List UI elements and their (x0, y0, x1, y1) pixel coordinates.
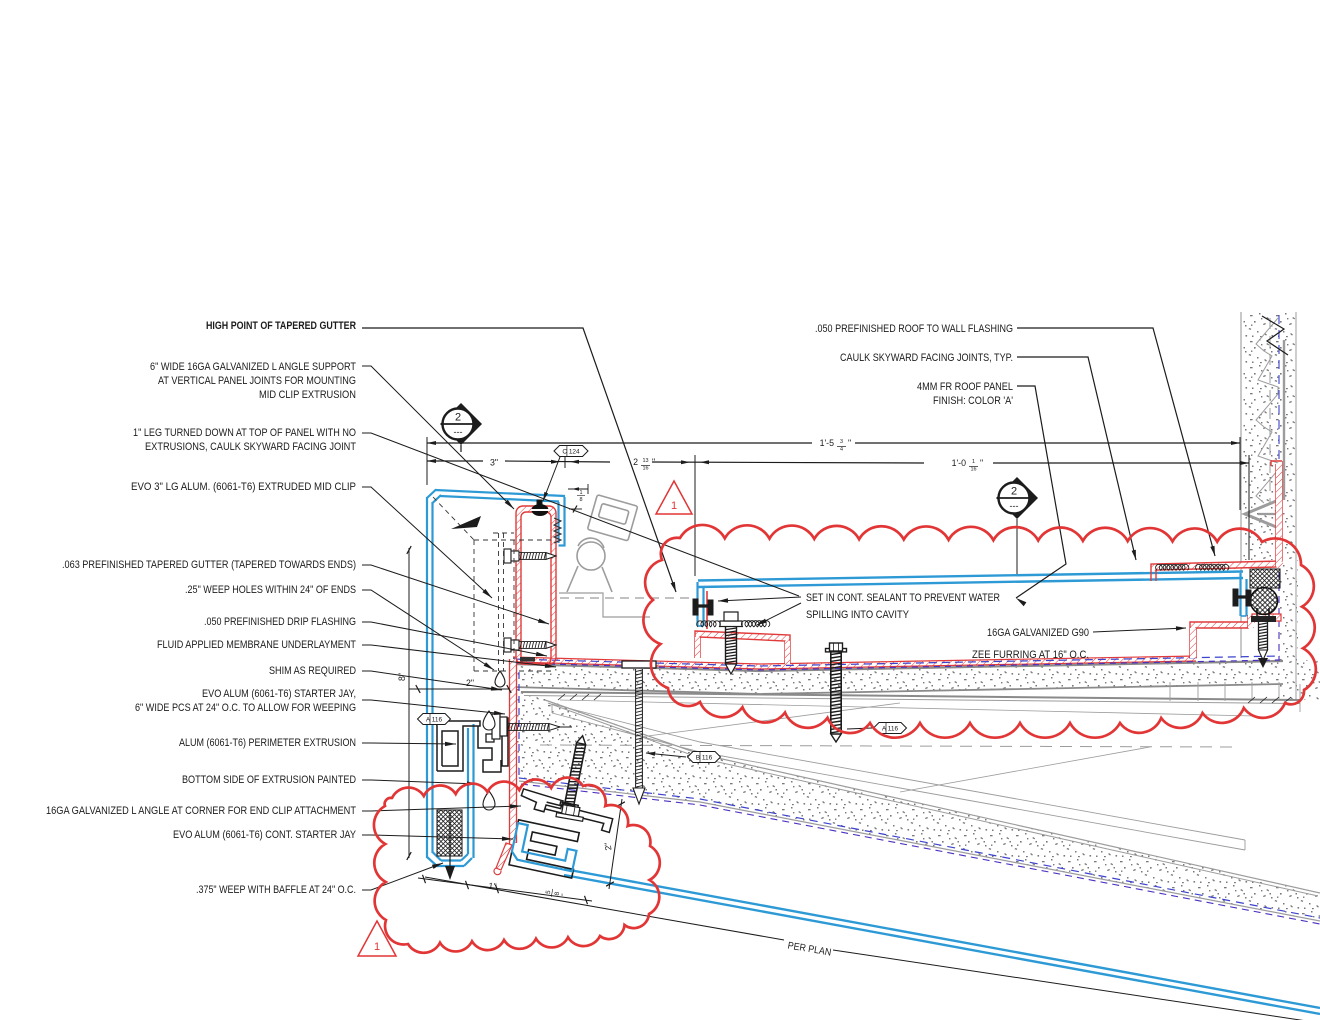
svg-text:B 116: B 116 (696, 754, 713, 761)
svg-text:1'-5: 1'-5 (820, 438, 835, 448)
svg-text:FLUID APPLIED MEMBRANE UNDERLA: FLUID APPLIED MEMBRANE UNDERLAYMENT (157, 639, 356, 651)
svg-text:A 116: A 116 (426, 716, 443, 723)
svg-text:13: 13 (642, 458, 648, 464)
svg-text:6" WIDE 16GA GALVANIZED L ANGL: 6" WIDE 16GA GALVANIZED L ANGLE SUPPORT (150, 361, 356, 373)
svg-text:": " (980, 458, 983, 468)
svg-text:2": 2" (466, 678, 474, 688)
svg-text:2: 2 (455, 412, 461, 424)
svg-text:1: 1 (671, 500, 677, 512)
svg-text:16: 16 (970, 467, 976, 473)
svg-text:16GA GALVANIZED G90: 16GA GALVANIZED G90 (987, 627, 1089, 639)
svg-text:ZEE FURRING AT 16" O.C.: ZEE FURRING AT 16" O.C. (972, 649, 1089, 661)
svg-text:.063 PREFINISHED TAPERED GUTTE: .063 PREFINISHED TAPERED GUTTER (TAPERED… (62, 559, 356, 571)
svg-text:ALUM (6061-T6) PERIMETER EXTRU: ALUM (6061-T6) PERIMETER EXTRUSION (179, 737, 356, 749)
svg-text:.375" WEEP WITH BAFFLE AT 24": .375" WEEP WITH BAFFLE AT 24" O.C. (196, 884, 356, 896)
svg-text:EVO ALUM (6061-T6) STARTER JAY: EVO ALUM (6061-T6) STARTER JAY, (202, 688, 356, 700)
svg-text:---: --- (454, 427, 463, 437)
svg-text:3": 3" (490, 458, 498, 468)
svg-text:": " (848, 438, 851, 448)
svg-text:EXTRUSIONS, CAULK SKYWARD FACI: EXTRUSIONS, CAULK SKYWARD FACING JOINT (145, 441, 356, 453)
svg-text:.050 PREFINISHED ROOF TO WALL: .050 PREFINISHED ROOF TO WALL FLASHING (815, 323, 1013, 335)
svg-text:1: 1 (579, 490, 582, 496)
svg-text:CAULK SKYWARD FACING JOINTS, T: CAULK SKYWARD FACING JOINTS, TYP. (840, 352, 1013, 364)
svg-text:6" WIDE PCS AT 24" O.C. TO ALL: 6" WIDE PCS AT 24" O.C. TO ALLOW FOR WEE… (135, 702, 356, 714)
svg-text:4MM FR ROOF PANEL: 4MM FR ROOF PANEL (917, 381, 1013, 393)
svg-text:1: 1 (374, 941, 380, 953)
svg-text:SET IN CONT. SEALANT TO PREVEN: SET IN CONT. SEALANT TO PREVENT WATER (806, 592, 1000, 604)
svg-text:8": 8" (397, 673, 407, 681)
svg-text:---: --- (1010, 501, 1019, 511)
svg-text:.25" WEEP HOLES WITHIN 24" OF: .25" WEEP HOLES WITHIN 24" OF ENDS (185, 584, 356, 596)
svg-text:1: 1 (972, 459, 975, 465)
svg-text:AT VERTICAL PANEL JOINTS FOR M: AT VERTICAL PANEL JOINTS FOR MOUNTING (158, 375, 356, 387)
svg-text:SPILLING INTO CAVITY: SPILLING INTO CAVITY (806, 609, 909, 621)
svg-text:EVO 3" LG ALUM. (6061-T6) EXTR: EVO 3" LG ALUM. (6061-T6) EXTRUDED MID C… (131, 481, 356, 493)
svg-text:SHIM AS REQUIRED: SHIM AS REQUIRED (269, 665, 356, 677)
svg-text:4: 4 (840, 447, 843, 453)
svg-text:2": 2" (603, 842, 614, 851)
svg-text:FINISH: COLOR 'A': FINISH: COLOR 'A' (933, 395, 1013, 407)
svg-text:3: 3 (840, 439, 843, 445)
svg-text:8: 8 (579, 497, 582, 503)
svg-text:16GA GALVANIZED L ANGLE AT COR: 16GA GALVANIZED L ANGLE AT CORNER FOR EN… (46, 805, 356, 817)
svg-text:": " (652, 457, 655, 467)
svg-text:BOTTOM SIDE OF EXTRUSION PAINT: BOTTOM SIDE OF EXTRUSION PAINTED (182, 774, 356, 786)
svg-text:1'-0: 1'-0 (952, 458, 967, 468)
svg-text:MID CLIP EXTRUSION: MID CLIP EXTRUSION (259, 389, 356, 401)
svg-text:16: 16 (642, 466, 648, 472)
svg-text:2: 2 (633, 457, 638, 467)
svg-text:A 116: A 116 (882, 725, 899, 732)
svg-text:1" LEG TURNED DOWN AT TOP OF P: 1" LEG TURNED DOWN AT TOP OF PANEL WITH … (133, 427, 356, 439)
svg-text:EVO ALUM (6061-T6) CONT. START: EVO ALUM (6061-T6) CONT. STARTER JAY (173, 829, 356, 841)
svg-text:1": 1" (488, 881, 497, 892)
svg-text:.050 PREFINISHED DRIP FLASHING: .050 PREFINISHED DRIP FLASHING (204, 616, 356, 628)
svg-text:HIGH POINT OF TAPERED GUTTER: HIGH POINT OF TAPERED GUTTER (206, 320, 356, 332)
svg-text:C 124: C 124 (562, 448, 580, 455)
svg-text:2: 2 (1011, 486, 1017, 498)
